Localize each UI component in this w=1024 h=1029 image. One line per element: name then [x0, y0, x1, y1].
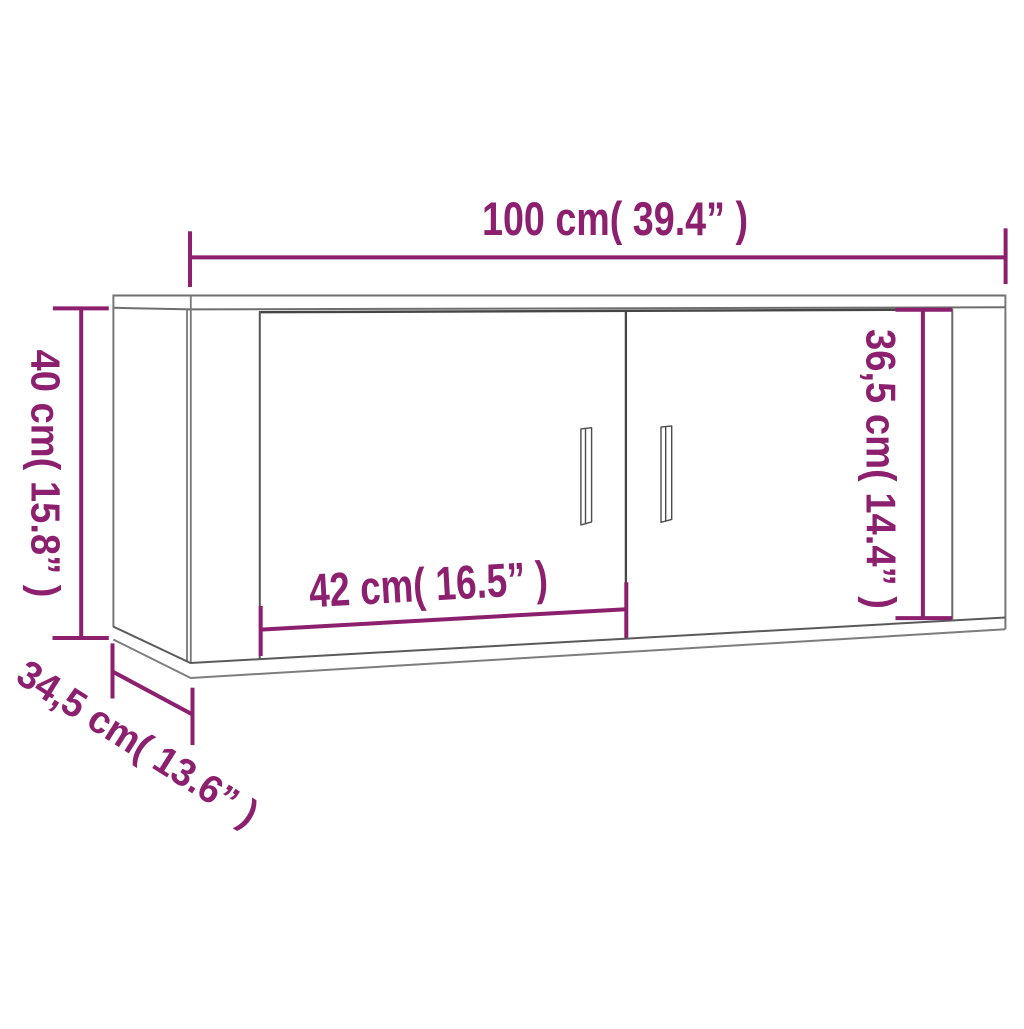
svg-text:40 cm( 15.8” ): 40 cm( 15.8” )	[23, 350, 69, 598]
svg-text:100 cm( 39.4” ): 100 cm( 39.4” )	[482, 193, 748, 246]
svg-text:36,5 cm( 14.4” ): 36,5 cm( 14.4” )	[858, 329, 905, 609]
